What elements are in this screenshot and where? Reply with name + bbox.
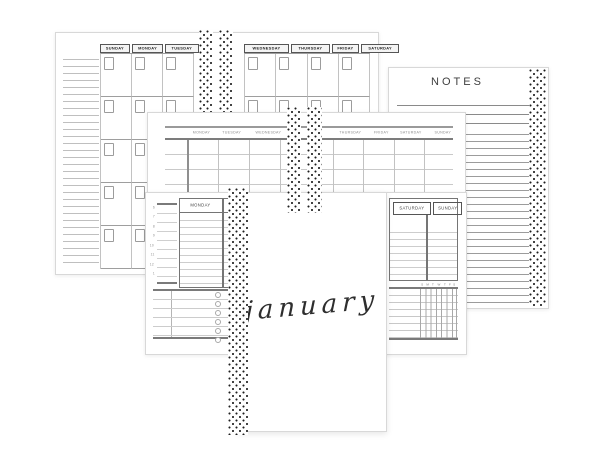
date-box — [104, 143, 114, 156]
day-header-cell: SATURDAY — [393, 128, 429, 138]
date-box — [135, 143, 145, 156]
schedule-column-divider — [426, 215, 428, 280]
polka-dot-washi-strip — [529, 69, 547, 307]
date-box — [135, 57, 145, 70]
date-box — [248, 57, 258, 70]
polka-dot-washi-strip — [307, 107, 322, 213]
date-box — [104, 100, 114, 113]
calendar-day-cell — [245, 54, 276, 97]
polka-dot-washi-strip — [219, 30, 233, 116]
polka-dot-washi-strip — [199, 30, 213, 116]
hour-label: 9 — [153, 235, 155, 238]
day-header-cell: TUESDAY — [165, 44, 199, 53]
day-header-label: SATURDAY — [368, 47, 392, 51]
calendar-day-cell — [308, 54, 339, 97]
todo-checkbox-circle — [215, 292, 221, 298]
day-header-cell: WEDNESDAY — [244, 44, 289, 53]
todo-checkbox-circle — [215, 328, 221, 334]
date-box — [104, 57, 114, 70]
day-header-label: WEDNESDAY — [253, 47, 281, 51]
month-cover-title: january — [238, 284, 386, 327]
polka-dot-washi-strip — [228, 188, 248, 435]
day-header-cell: MONDAY — [180, 199, 221, 212]
tracker-tick-label: F — [449, 283, 451, 286]
tracker-tick-label: T — [444, 283, 446, 286]
todo-row — [153, 309, 234, 318]
day-header-label: SATURDAY — [400, 131, 421, 135]
notes-title: NOTES — [389, 76, 526, 88]
schedule-lines — [390, 226, 457, 280]
date-box — [104, 229, 114, 242]
day-header-cell: MONDAY — [187, 128, 216, 138]
polka-dot-washi-strip — [287, 107, 301, 213]
day-header-cell: FRIDAY — [369, 128, 394, 138]
day-header-label: WEDNESDAY — [256, 131, 282, 135]
hour-label: 12 — [150, 263, 154, 266]
day-header-cell: TUESDAY — [216, 128, 247, 138]
tracker-tick-label: W — [438, 283, 441, 286]
day-header-label: FRIDAY — [337, 47, 353, 51]
day-header-label: SUNDAY — [434, 131, 451, 135]
tracker-tick-label: T — [432, 283, 434, 286]
date-box — [279, 57, 289, 70]
hour-label: 6 — [153, 206, 155, 209]
todo-checkbox-circle — [215, 301, 221, 307]
weekday-header-row: SUNDAYMONDAYTUESDAY — [100, 44, 194, 53]
date-box — [135, 229, 145, 242]
planner-pages-mockup: SUNDAYMONDAYTUESDAY WEDNESDAYTHURSDAYFRI… — [0, 0, 600, 465]
tracker-grid-columns — [420, 289, 457, 338]
weekly-days-right: THURSDAYFRIDAYSATURDAYSUNDAY — [332, 128, 453, 138]
weekly-days-left: MONDAYTUESDAYWEDNESDAY — [187, 128, 280, 138]
page-month-cover: january — [237, 192, 387, 432]
day-header-label: SATURDAY — [399, 206, 424, 210]
daily-side-lines — [157, 203, 177, 284]
tracker-tick-label: M — [427, 283, 430, 286]
todo-checkbox-circle — [215, 337, 221, 343]
day-header-label: TUESDAY — [171, 47, 192, 51]
date-box — [104, 186, 114, 199]
date-box — [311, 57, 321, 70]
daily-day-headers: SATURDAYSUNDAY — [390, 199, 457, 215]
weekly-time-column-stub — [165, 128, 187, 138]
hour-label: 8 — [153, 225, 155, 228]
day-header-cell: SUNDAY — [100, 44, 130, 53]
calendar-day-cell — [101, 226, 132, 269]
calendar-day-cell — [101, 54, 132, 97]
calendar-day-cell — [276, 54, 307, 97]
day-header-label: SUNDAY — [438, 206, 457, 210]
day-header-cell: THURSDAY — [332, 128, 369, 138]
todo-checkbox-circle — [215, 319, 221, 325]
day-header-cell: THURSDAY — [291, 44, 330, 53]
calendar-day-cell — [101, 183, 132, 226]
tracker-tick-label: S — [421, 283, 423, 286]
todo-row — [153, 327, 234, 336]
day-header-label: TUESDAY — [222, 131, 241, 135]
day-header-label: MONDAY — [193, 131, 210, 135]
daily-schedule-right: SATURDAYSUNDAY — [389, 198, 458, 281]
hour-label: 7 — [153, 216, 155, 219]
calendar-day-cell — [101, 140, 132, 183]
notes-lines-column — [63, 53, 99, 267]
day-header-label: MONDAY — [138, 47, 157, 51]
day-header-cell: SUNDAY — [433, 202, 463, 215]
calendar-day-cell — [101, 97, 132, 140]
hour-label: 10 — [150, 244, 154, 247]
day-header-cell: SATURDAY — [361, 44, 399, 53]
habit-tracker — [389, 287, 458, 340]
date-box — [135, 186, 145, 199]
day-header-cell: FRIDAY — [332, 44, 359, 53]
weekday-header-row: WEDNESDAYTHURSDAYFRIDAYSATURDAY — [244, 44, 370, 53]
day-header-label: THURSDAY — [339, 131, 361, 135]
calendar-day-cell — [339, 54, 370, 97]
date-box — [135, 100, 145, 113]
todo-checkbox-circle — [215, 310, 221, 316]
day-header-cell: SUNDAY — [429, 128, 457, 138]
date-box — [166, 57, 176, 70]
hour-label: 11 — [150, 253, 154, 256]
day-header-label: FRIDAY — [373, 131, 388, 135]
schedule-column-divider — [222, 199, 224, 287]
todo-row — [153, 300, 234, 309]
day-header-label: THURSDAY — [298, 47, 322, 51]
day-header-label: MONDAY — [190, 203, 210, 207]
calendar-day-cell — [132, 54, 163, 97]
day-header-cell: SATURDAY — [393, 202, 431, 215]
hour-label: 1 — [153, 272, 155, 275]
hour-labels-column: 67891011121 — [147, 205, 156, 277]
todo-row — [153, 336, 234, 344]
date-box — [342, 57, 352, 70]
todo-row — [153, 291, 234, 300]
todo-list — [153, 289, 234, 339]
day-header-cell: MONDAY — [132, 44, 163, 53]
day-header-label: SUNDAY — [106, 47, 124, 51]
todo-row — [153, 318, 234, 327]
calendar-day-cell — [163, 54, 194, 97]
tracker-tick-label: S — [454, 283, 456, 286]
